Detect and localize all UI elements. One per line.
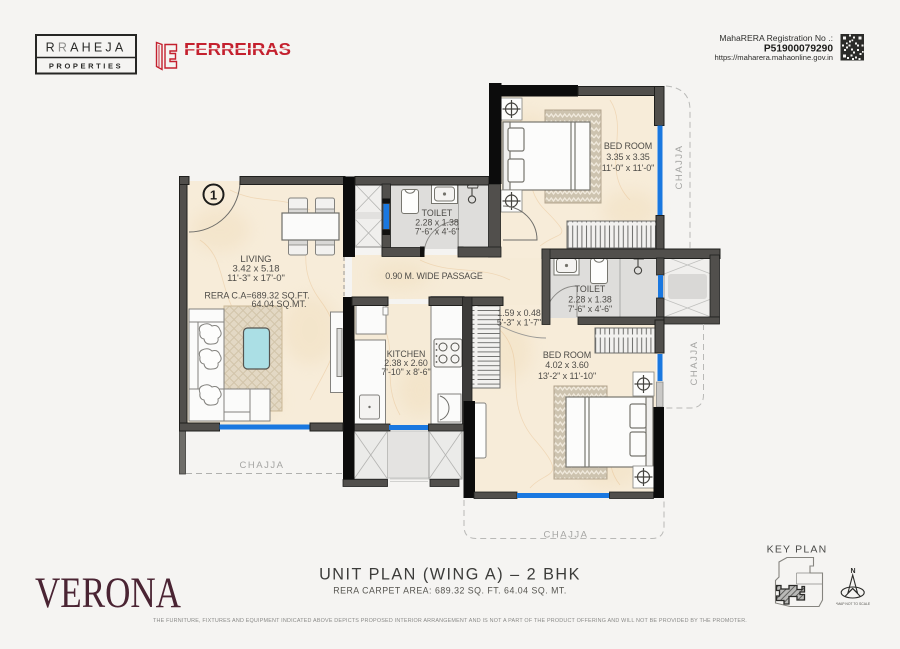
svg-text:7'-6" x 4'-6": 7'-6" x 4'-6" bbox=[568, 304, 612, 314]
svg-text:1: 1 bbox=[210, 188, 217, 203]
svg-text:CHAJJA: CHAJJA bbox=[689, 341, 700, 386]
svg-text:0.90 M. WIDE PASSAGE: 0.90 M. WIDE PASSAGE bbox=[385, 271, 483, 281]
svg-text:CHAJJA: CHAJJA bbox=[240, 460, 285, 471]
svg-text:MahaRERA Registration No .:: MahaRERA Registration No .: bbox=[719, 33, 833, 43]
svg-text:BED ROOM: BED ROOM bbox=[543, 350, 591, 360]
svg-text:7'-10" x 8'-6": 7'-10" x 8'-6" bbox=[381, 367, 430, 377]
svg-text:13'-2" x 11'-10": 13'-2" x 11'-10" bbox=[538, 371, 596, 381]
svg-text:CHAJJA: CHAJJA bbox=[674, 145, 685, 190]
svg-text:1.59 x 0.48: 1.59 x 0.48 bbox=[497, 308, 541, 318]
svg-text:11'-3" x 17'-0": 11'-3" x 17'-0" bbox=[227, 273, 285, 284]
svg-text:RRAHEJA: RRAHEJA bbox=[46, 41, 127, 55]
svg-text:TOILET: TOILET bbox=[422, 208, 453, 218]
svg-text:N: N bbox=[850, 568, 855, 575]
svg-text:5'-3" x 1'-7": 5'-3" x 1'-7" bbox=[497, 318, 541, 328]
svg-text:RERA CARPET AREA: 689.32 SQ. F: RERA CARPET AREA: 689.32 SQ. FT. 64.04 S… bbox=[333, 586, 567, 596]
svg-text:64.04 SQ.MT.: 64.04 SQ.MT. bbox=[251, 299, 306, 309]
svg-text:UNIT PLAN (WING A) – 2 BHK: UNIT PLAN (WING A) – 2 BHK bbox=[319, 566, 581, 584]
svg-text:PROPERTIES: PROPERTIES bbox=[49, 62, 123, 71]
svg-text:BED ROOM: BED ROOM bbox=[604, 141, 652, 151]
svg-text:*MAP NOT TO SCALE: *MAP NOT TO SCALE bbox=[836, 602, 871, 606]
svg-text:4.02 x 3.60: 4.02 x 3.60 bbox=[545, 360, 589, 370]
svg-text:https://maharera.mahaonline.go: https://maharera.mahaonline.gov.in bbox=[715, 53, 833, 62]
svg-text:7'-6" x 4'-6": 7'-6" x 4'-6" bbox=[415, 227, 459, 237]
svg-text:THE FURNITURE, FIXTURES AND EQ: THE FURNITURE, FIXTURES AND EQUIPMENT IN… bbox=[153, 618, 747, 624]
svg-text:TOILET: TOILET bbox=[575, 284, 606, 294]
svg-text:CHAJJA: CHAJJA bbox=[544, 530, 589, 541]
svg-text:VERONA: VERONA bbox=[35, 570, 181, 617]
svg-text:KEY PLAN: KEY PLAN bbox=[767, 544, 828, 556]
svg-text:11'-0" x 11'-0": 11'-0" x 11'-0" bbox=[602, 163, 655, 173]
svg-text:2.28 x 1.38: 2.28 x 1.38 bbox=[568, 295, 612, 305]
svg-text:3.35 x 3.35: 3.35 x 3.35 bbox=[606, 152, 650, 162]
